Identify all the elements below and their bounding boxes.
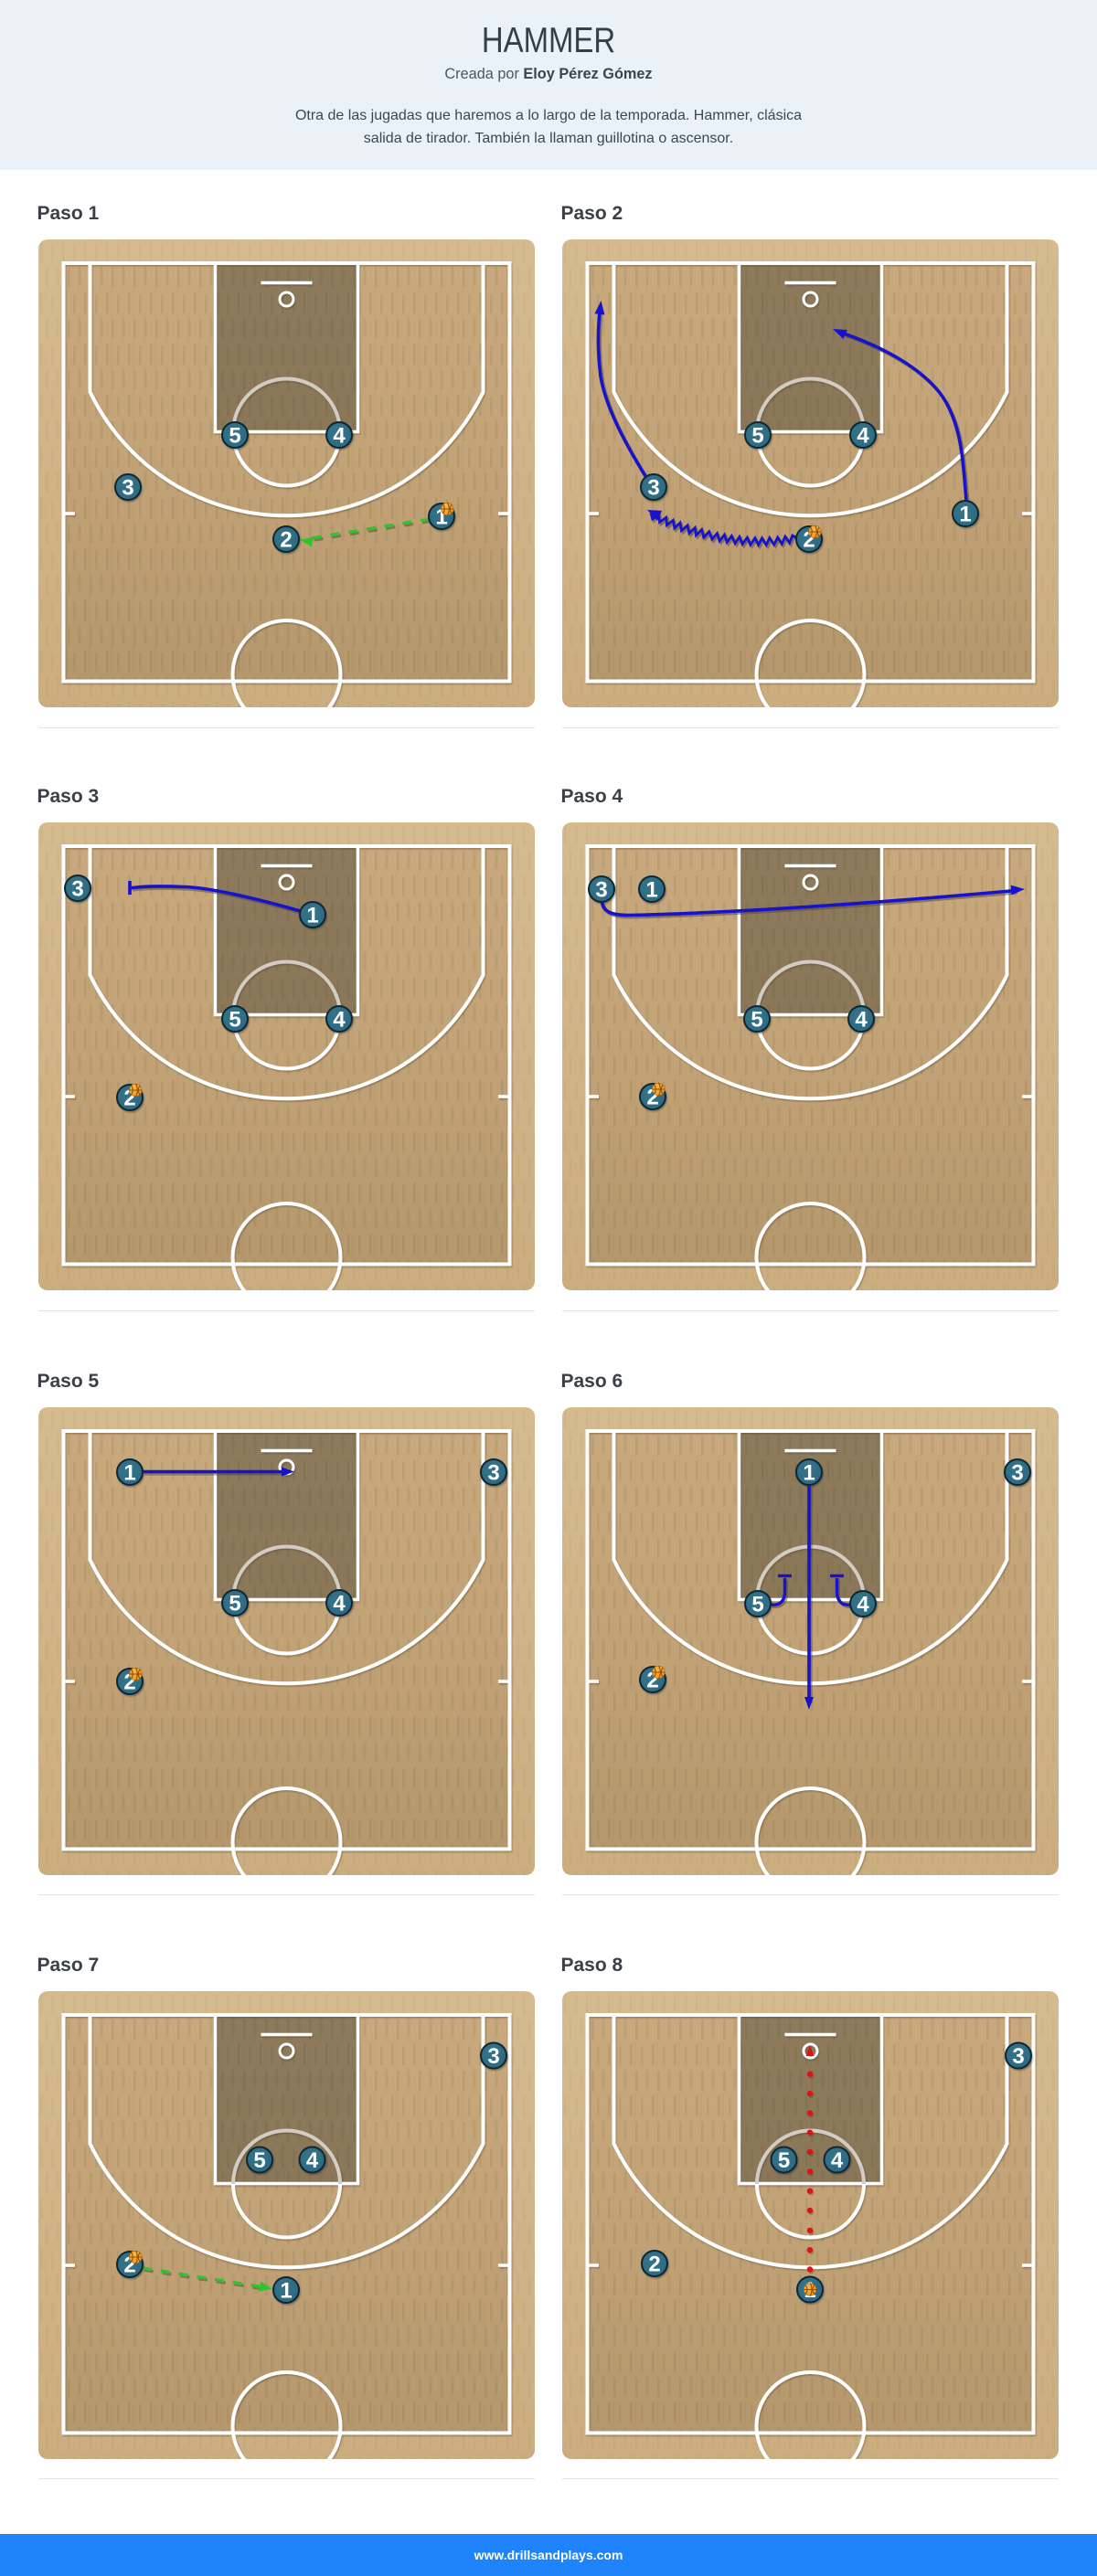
svg-text:5: 5 <box>229 1592 240 1617</box>
svg-text:4: 4 <box>831 2148 844 2173</box>
svg-text:5: 5 <box>229 424 240 449</box>
svg-text:3: 3 <box>122 476 133 501</box>
svg-text:3: 3 <box>71 877 83 902</box>
svg-text:1: 1 <box>959 503 971 527</box>
svg-text:4: 4 <box>333 424 346 449</box>
svg-text:5: 5 <box>253 2148 265 2173</box>
svg-text:5: 5 <box>751 424 763 449</box>
svg-text:4: 4 <box>855 1008 868 1033</box>
svg-text:4: 4 <box>333 1008 346 1033</box>
svg-text:4: 4 <box>306 2148 319 2173</box>
svg-text:2: 2 <box>648 2253 660 2277</box>
svg-text:3: 3 <box>1012 2044 1024 2069</box>
svg-text:1: 1 <box>123 1461 135 1486</box>
svg-text:5: 5 <box>751 1593 763 1617</box>
svg-text:4: 4 <box>857 424 869 449</box>
svg-text:4: 4 <box>333 1592 346 1617</box>
svg-text:3: 3 <box>487 1461 499 1486</box>
svg-text:4: 4 <box>857 1593 869 1617</box>
svg-text:1: 1 <box>803 1461 815 1486</box>
svg-text:3: 3 <box>647 476 659 501</box>
svg-text:3: 3 <box>595 878 607 903</box>
svg-text:5: 5 <box>751 1008 762 1033</box>
svg-text:5: 5 <box>778 2148 790 2173</box>
svg-text:3: 3 <box>1011 1461 1023 1486</box>
svg-text:5: 5 <box>229 1008 240 1033</box>
svg-text:1: 1 <box>280 2279 292 2304</box>
svg-text:3: 3 <box>487 2044 499 2069</box>
svg-text:1: 1 <box>645 878 657 903</box>
svg-text:2: 2 <box>280 528 292 553</box>
svg-text:1: 1 <box>306 904 318 928</box>
